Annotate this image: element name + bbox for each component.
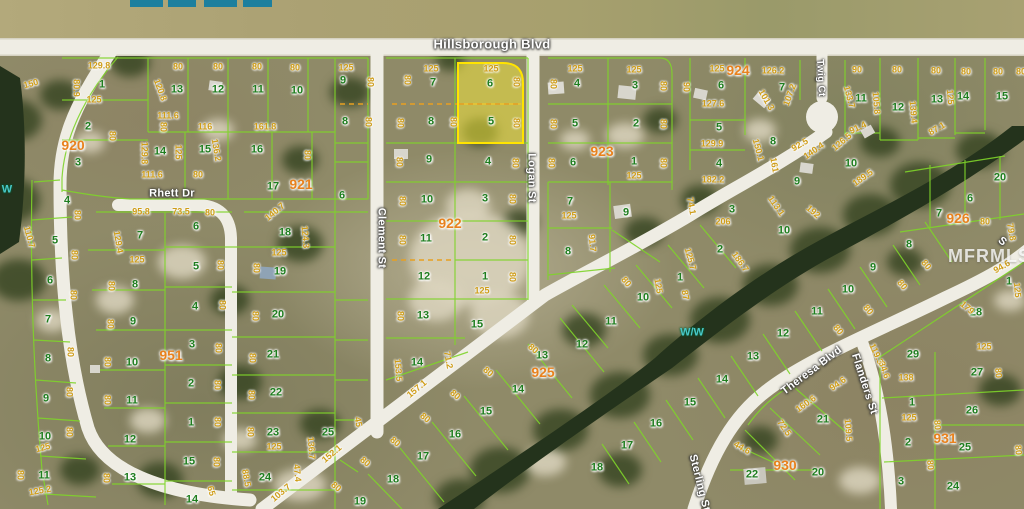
top-marks-layer [0, 0, 1024, 509]
map-viewport[interactable]: Hillsborough BlvdRhett DrClement StLogan… [0, 0, 1024, 509]
watermark-top-mark [168, 0, 196, 7]
watermark-top-mark [204, 0, 237, 7]
watermark-top-mark [130, 0, 163, 7]
watermark-top-mark [243, 0, 272, 7]
